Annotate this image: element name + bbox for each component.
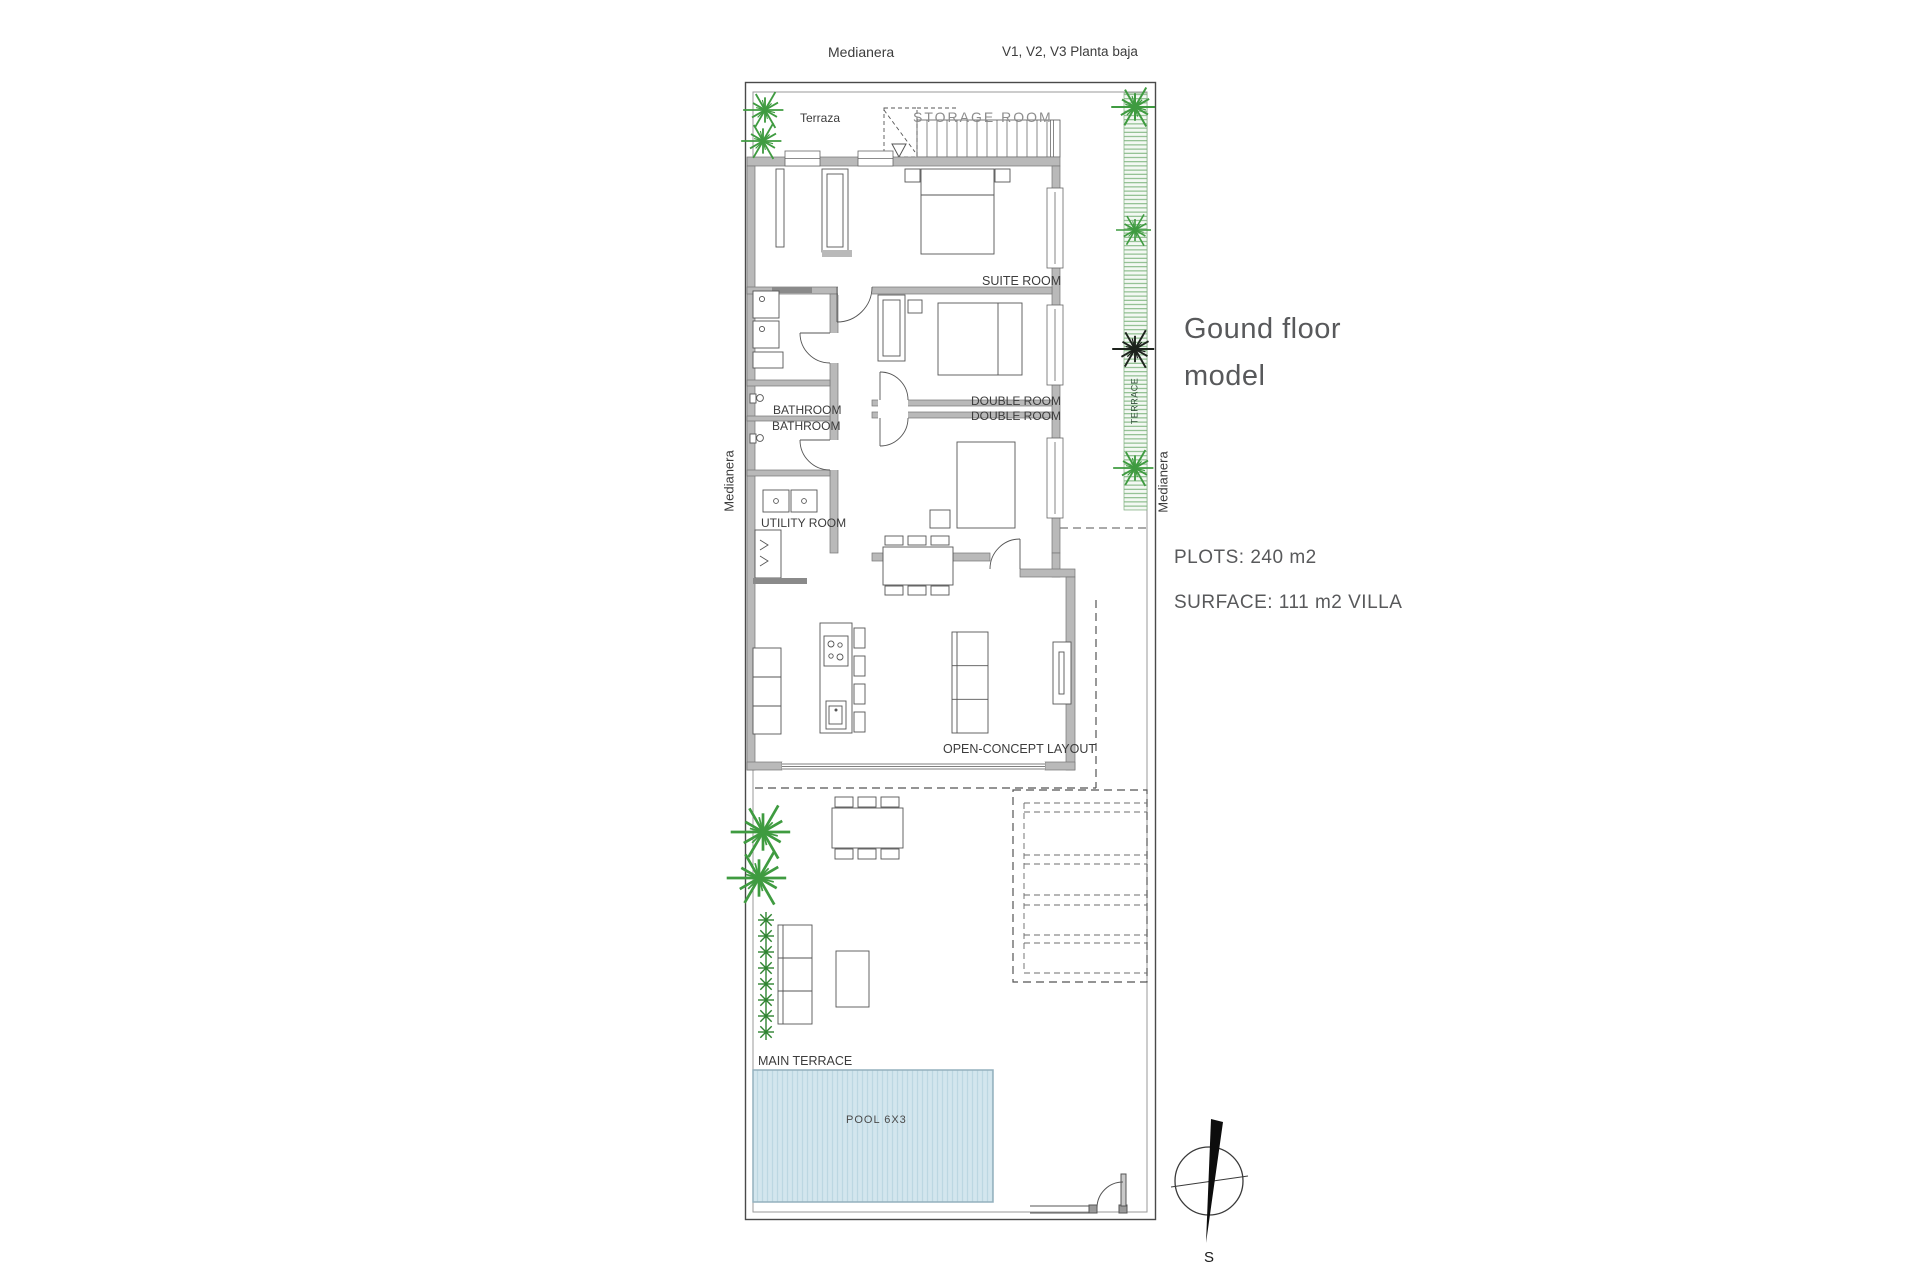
pool [753,1070,993,1202]
floor-plan-page: Medianera V1, V2, V3 Planta baja Terraza… [0,0,1920,1280]
garden-gate [1030,1174,1127,1213]
room-label-open-concept: OPEN-CONCEPT LAYOUT [943,743,1096,756]
room-label-double-1: DOUBLE ROOM [971,395,1061,407]
room-label-main-terrace: MAIN TERRACE [758,1055,852,1068]
medianera-right-label: Medianera [1157,451,1170,512]
medianera-top-label: Medianera [828,45,894,59]
terrace-strip-label: TERRACE [1131,378,1140,425]
surface-area-text: SURFACE: 111 m2 VILLA [1174,593,1402,612]
plots-area-text: PLOTS: 240 m2 [1174,548,1317,567]
room-label-suite: SUITE ROOM [982,275,1061,288]
planta-baja-note: V1, V2, V3 Planta baja [1002,45,1138,59]
room-label-terraza: Terraza [800,112,840,124]
room-label-bathroom-1: BATHROOM [773,404,841,416]
room-label-storage: STORAGE ROOM [913,110,1053,124]
page-title: Gound floor model [1184,306,1389,400]
fixtures [750,287,865,734]
pool-label: POOL 6X3 [846,1115,907,1126]
compass-south-label: S [1204,1250,1214,1265]
medianera-left-label: Medianera [723,450,736,511]
compass-icon [1171,1119,1248,1243]
room-label-double-2: DOUBLE ROOM [971,410,1061,422]
outdoor-furniture [778,797,903,1024]
side-terrace-strip [1124,93,1147,510]
room-label-utility: UTILITY ROOM [761,517,846,529]
building-walls [747,157,1075,770]
room-label-bathroom-2: BATHROOM [772,420,840,432]
floor-plan-drawing [0,0,1920,1280]
